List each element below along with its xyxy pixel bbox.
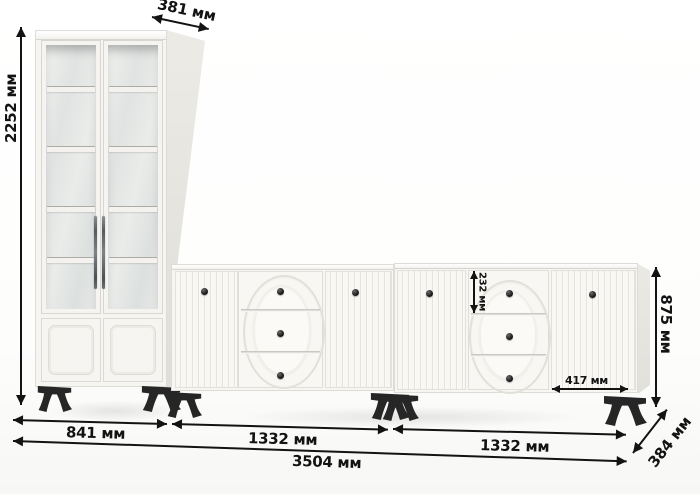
- cabinet-bottom-panel-right: [103, 318, 163, 382]
- glass-shelf: [47, 146, 95, 152]
- drawer-divider: [241, 309, 320, 312]
- sideboard-top-rail: [172, 265, 393, 270]
- dim-top-drawer-height-label: 232 мм: [477, 269, 488, 315]
- fluted-door: [325, 271, 392, 388]
- dim-cabinet-width-label: 841 мм: [66, 423, 126, 443]
- door-knob: [426, 290, 433, 297]
- drawer-knob: [506, 333, 513, 340]
- dim-right-door-width-label: 417 мм: [565, 374, 608, 387]
- leg-cluster: [381, 394, 419, 421]
- glass-pane: [46, 45, 96, 309]
- panel-inset-frame: [111, 326, 155, 374]
- sideboard-top-rail: [395, 264, 637, 269]
- cabinet-top-rail: [36, 31, 166, 40]
- door-knob: [201, 288, 208, 295]
- drawer-knob: [277, 288, 284, 295]
- glass-shelf: [109, 257, 157, 263]
- door-handle: [102, 216, 105, 289]
- dim-cabinet-height-arrow: [20, 27, 22, 405]
- drawer-knob: [506, 290, 513, 297]
- dim-total-width-label: 3504 мм: [292, 452, 362, 472]
- fluted-door: [397, 270, 466, 390]
- glass-door-right: [103, 40, 163, 314]
- drawer-stack: [238, 271, 323, 388]
- glass-shelf: [47, 86, 95, 92]
- dim-sideboard1-width-label: 1332 мм: [248, 429, 318, 449]
- sideboard-side-panel: [638, 264, 650, 394]
- dim-sideboard2-width-label: 1332 мм: [480, 436, 550, 456]
- diagram-canvas: 2252 мм 381 мм 875 мм 232 мм 417 мм 384 …: [0, 0, 700, 494]
- dim-sideboard-height-label: 875 мм: [657, 294, 675, 354]
- drawer-knob: [506, 375, 513, 382]
- dim-cabinet-height-label: 2252 мм: [2, 87, 20, 143]
- dim-right-door-width-arrow: [552, 388, 628, 390]
- dim-cabinet-depth-label: 381 мм: [156, 0, 218, 25]
- door-handle: [94, 216, 97, 289]
- glass-display-cabinet: [35, 30, 167, 387]
- sideboard-left: [171, 264, 394, 391]
- fluted-door: [175, 271, 238, 388]
- glass-shelf: [109, 86, 157, 92]
- glass-pane: [108, 45, 158, 309]
- door-knob: [352, 289, 359, 296]
- fluted-door: [551, 270, 636, 390]
- glass-door-left: [41, 40, 101, 314]
- leg-cluster: [37, 386, 72, 412]
- leg-cluster: [603, 396, 647, 426]
- drawer-divider: [471, 354, 546, 357]
- drawer-knob: [277, 330, 284, 337]
- glass-shelf: [47, 206, 95, 212]
- glass-shelf: [109, 206, 157, 212]
- drawer-divider: [241, 351, 320, 354]
- door-knob: [589, 291, 596, 298]
- leg-cluster: [166, 392, 202, 418]
- drawer-knob: [277, 372, 284, 379]
- glass-shelf: [47, 257, 95, 263]
- cabinet-bottom-panel-left: [41, 318, 101, 382]
- panel-inset-frame: [49, 326, 93, 374]
- dim-top-drawer-height-arrow: [473, 271, 475, 313]
- glass-shelf: [109, 146, 157, 152]
